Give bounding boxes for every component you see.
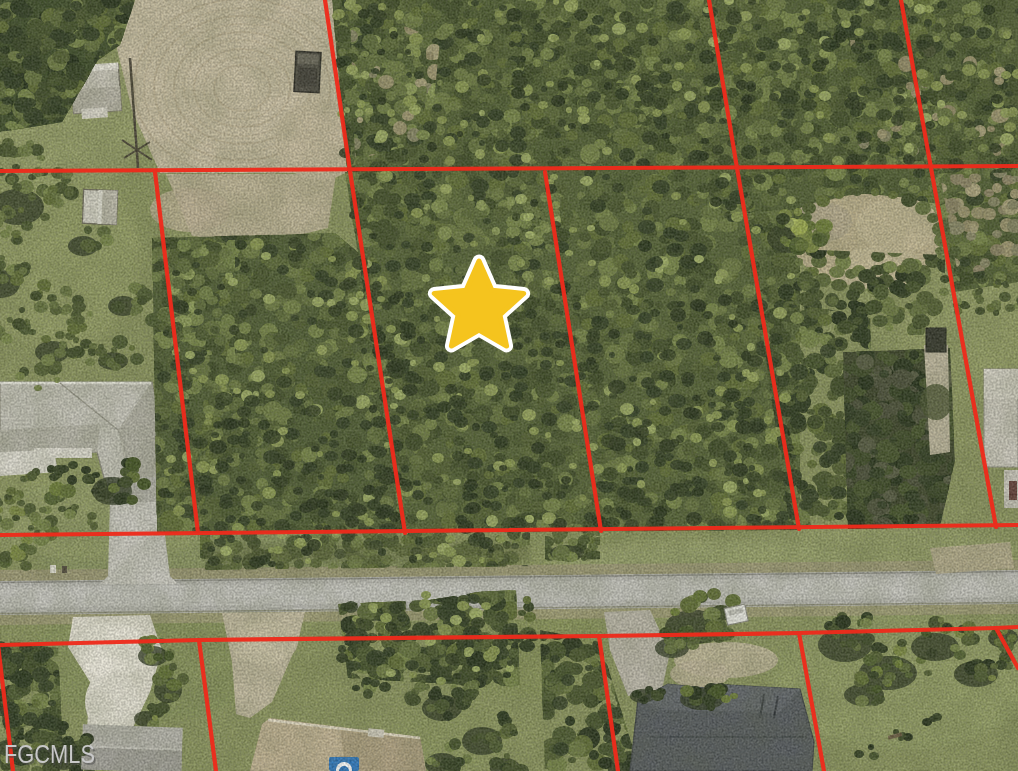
svg-text:FGCMLS: FGCMLS	[4, 739, 95, 769]
